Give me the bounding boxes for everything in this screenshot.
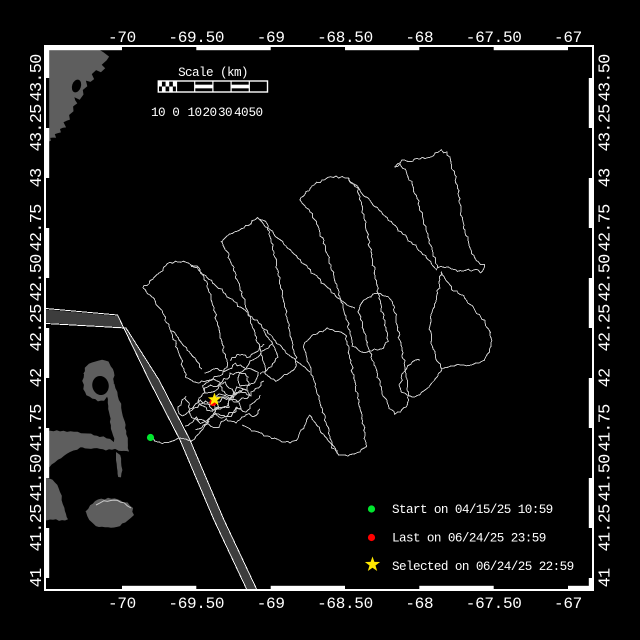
svg-text:42.25: 42.25	[597, 304, 616, 352]
svg-text:42.50: 42.50	[28, 254, 47, 302]
svg-text:-68: -68	[405, 595, 433, 613]
svg-text:43: 43	[597, 168, 616, 187]
svg-text:-69.50: -69.50	[168, 595, 224, 613]
svg-text:20: 20	[203, 105, 217, 120]
svg-text:-69.50: -69.50	[168, 29, 224, 47]
svg-text:43.25: 43.25	[597, 104, 616, 152]
svg-text:41.75: 41.75	[28, 404, 47, 452]
svg-text:42.75: 42.75	[597, 204, 616, 252]
svg-text:-70: -70	[108, 29, 136, 47]
svg-text:10: 10	[151, 105, 165, 120]
svg-text:-68.50: -68.50	[317, 595, 373, 613]
svg-text:43.50: 43.50	[597, 54, 616, 102]
svg-text:Scale (km): Scale (km)	[178, 65, 248, 80]
svg-text:-68.50: -68.50	[317, 29, 373, 47]
svg-text:43.50: 43.50	[28, 54, 47, 102]
svg-text:10: 10	[188, 105, 202, 120]
svg-text:41.50: 41.50	[597, 454, 616, 502]
svg-text:0: 0	[172, 105, 179, 120]
svg-text:-68: -68	[405, 29, 433, 47]
svg-text:Start on 04/15/25 10:59: Start on 04/15/25 10:59	[392, 502, 553, 517]
svg-text:40: 40	[234, 105, 248, 120]
svg-text:41.50: 41.50	[28, 454, 47, 502]
svg-text:-67: -67	[554, 595, 582, 613]
svg-text:-69: -69	[257, 595, 285, 613]
svg-text:42.25: 42.25	[28, 304, 47, 352]
svg-text:-67.50: -67.50	[466, 595, 522, 613]
svg-text:41: 41	[597, 568, 616, 587]
svg-text:43: 43	[28, 168, 47, 187]
svg-text:50: 50	[249, 105, 263, 120]
svg-text:-69: -69	[257, 29, 285, 47]
svg-text:43.25: 43.25	[28, 104, 47, 152]
svg-text:41.25: 41.25	[28, 504, 47, 552]
svg-text:41: 41	[28, 568, 47, 587]
svg-text:42: 42	[597, 369, 616, 388]
svg-text:41.75: 41.75	[597, 404, 616, 452]
svg-text:-67: -67	[554, 29, 582, 47]
svg-text:-67.50: -67.50	[466, 29, 522, 47]
svg-text:Selected on 06/24/25 22:59: Selected on 06/24/25 22:59	[392, 559, 574, 574]
svg-text:Last on 06/24/25 23:59: Last on 06/24/25 23:59	[392, 531, 546, 546]
svg-text:-70: -70	[108, 595, 136, 613]
svg-text:42.50: 42.50	[597, 254, 616, 302]
svg-text:42.75: 42.75	[28, 204, 47, 252]
svg-text:42: 42	[28, 369, 47, 388]
svg-text:30: 30	[218, 105, 232, 120]
svg-text:41.25: 41.25	[597, 504, 616, 552]
